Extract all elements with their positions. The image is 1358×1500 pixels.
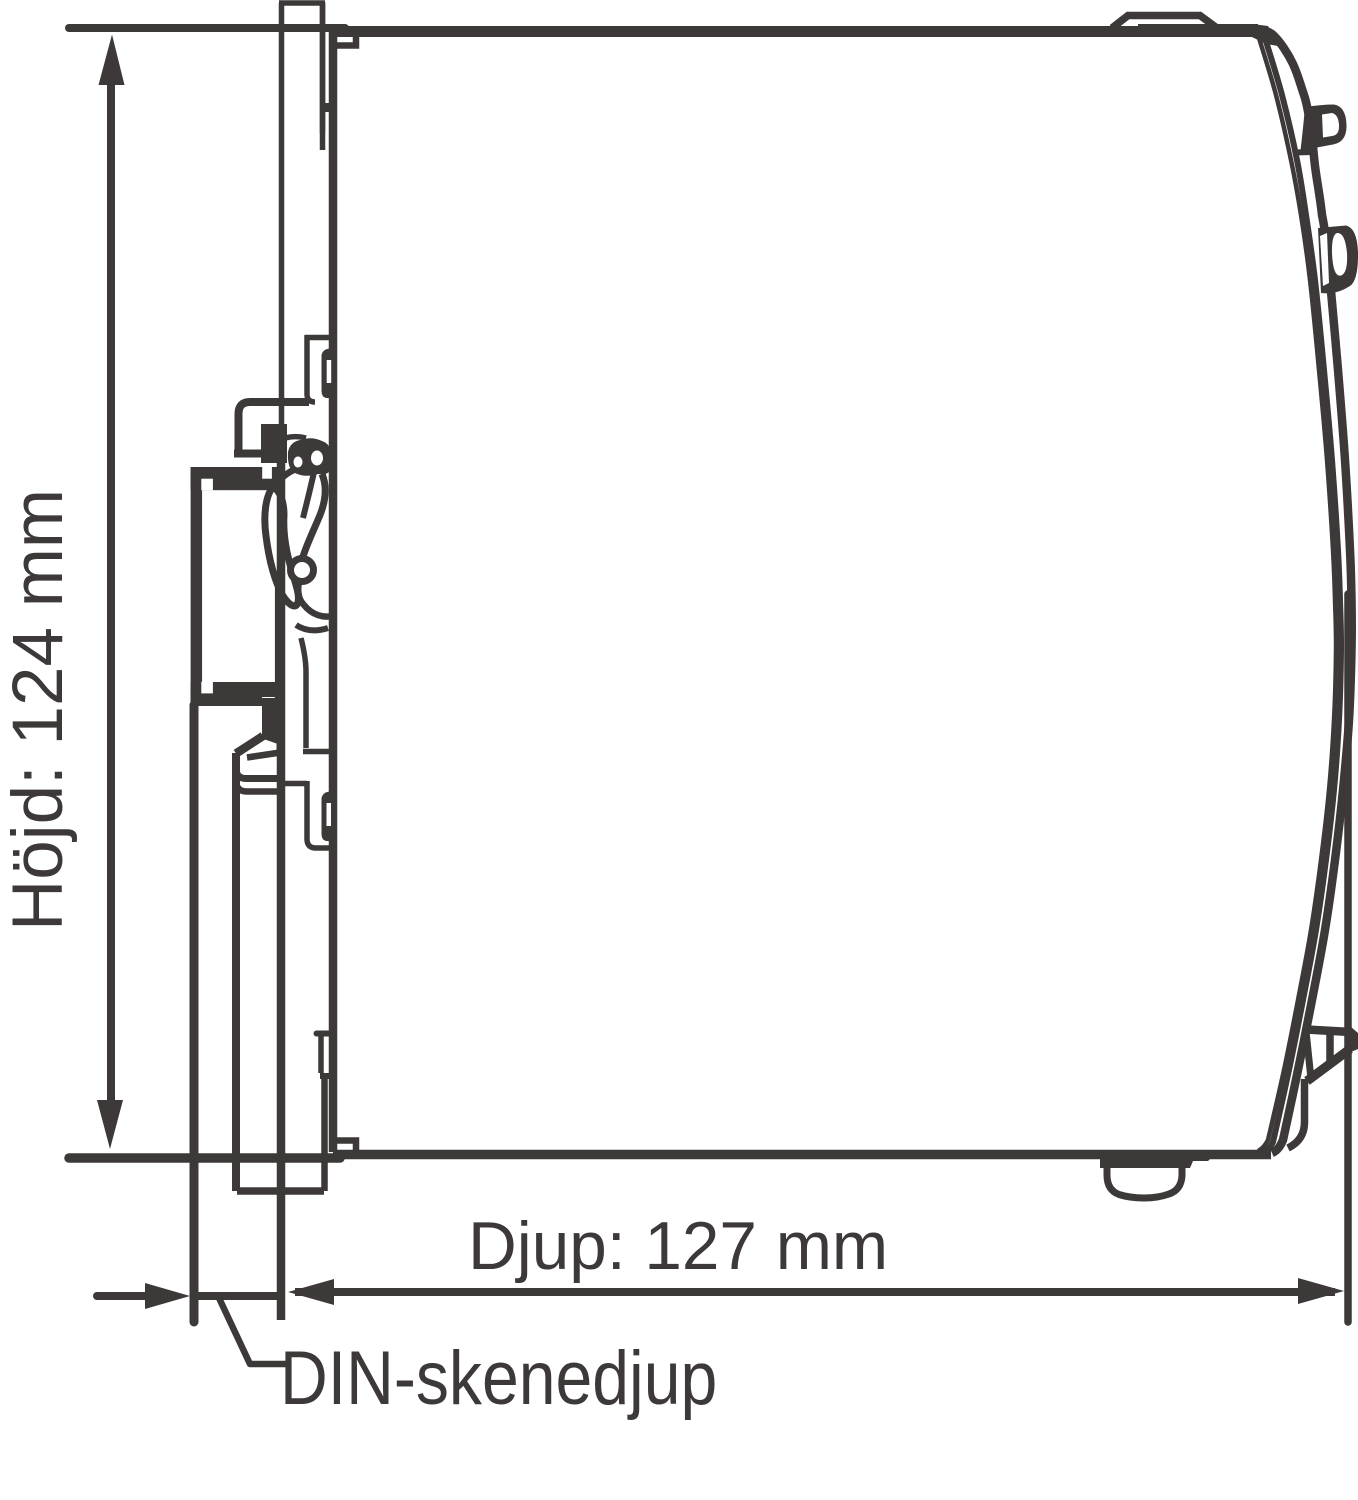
- svg-text:Höjd: 124 mm: Höjd: 124 mm: [0, 489, 78, 931]
- svg-text:DIN-skenedjup: DIN-skenedjup: [280, 1337, 717, 1421]
- svg-text:Djup: 127 mm: Djup: 127 mm: [468, 1209, 888, 1284]
